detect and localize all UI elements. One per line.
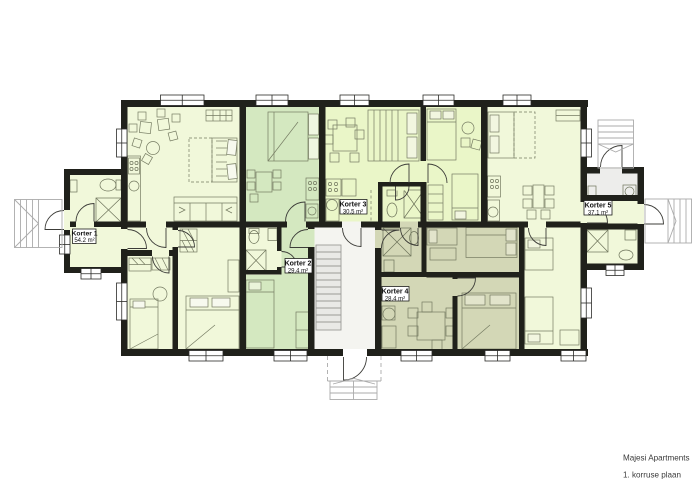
svg-text:Korter 3: Korter 3: [340, 202, 367, 209]
svg-text:Korter 2: Korter 2: [285, 261, 312, 268]
svg-text:29.4 m²: 29.4 m²: [288, 269, 308, 275]
svg-text:Majesi Apartments: Majesi Apartments: [623, 454, 690, 463]
svg-text:Korter 1: Korter 1: [71, 231, 97, 238]
svg-text:37.1 m²: 37.1 m²: [588, 211, 608, 217]
svg-text:Korter 4: Korter 4: [382, 289, 409, 296]
svg-text:30.5 m²: 30.5 m²: [343, 210, 363, 216]
svg-text:28.4 m²: 28.4 m²: [385, 297, 405, 303]
svg-text:54.2 m²: 54.2 m²: [74, 238, 94, 244]
svg-text:Korter 5: Korter 5: [585, 203, 612, 210]
svg-text:1. korruse plaan: 1. korruse plaan: [623, 471, 681, 480]
